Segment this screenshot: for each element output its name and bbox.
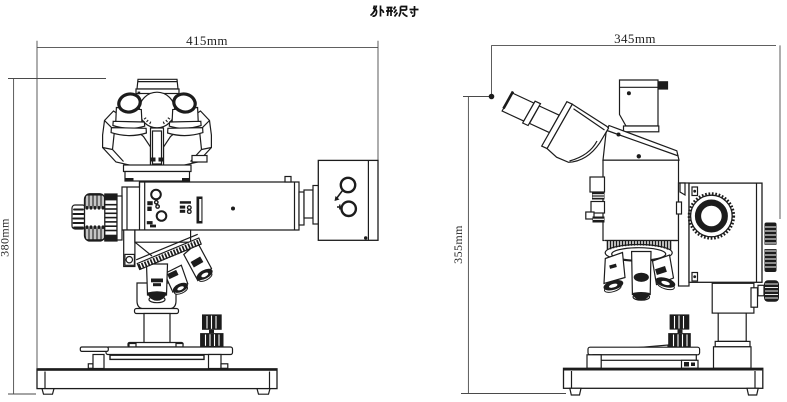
svg-text:345mm: 345mm [614,31,656,46]
svg-text:355mm: 355mm [451,225,465,264]
svg-text:380mm: 380mm [0,218,12,257]
svg-text:415mm: 415mm [186,33,228,48]
